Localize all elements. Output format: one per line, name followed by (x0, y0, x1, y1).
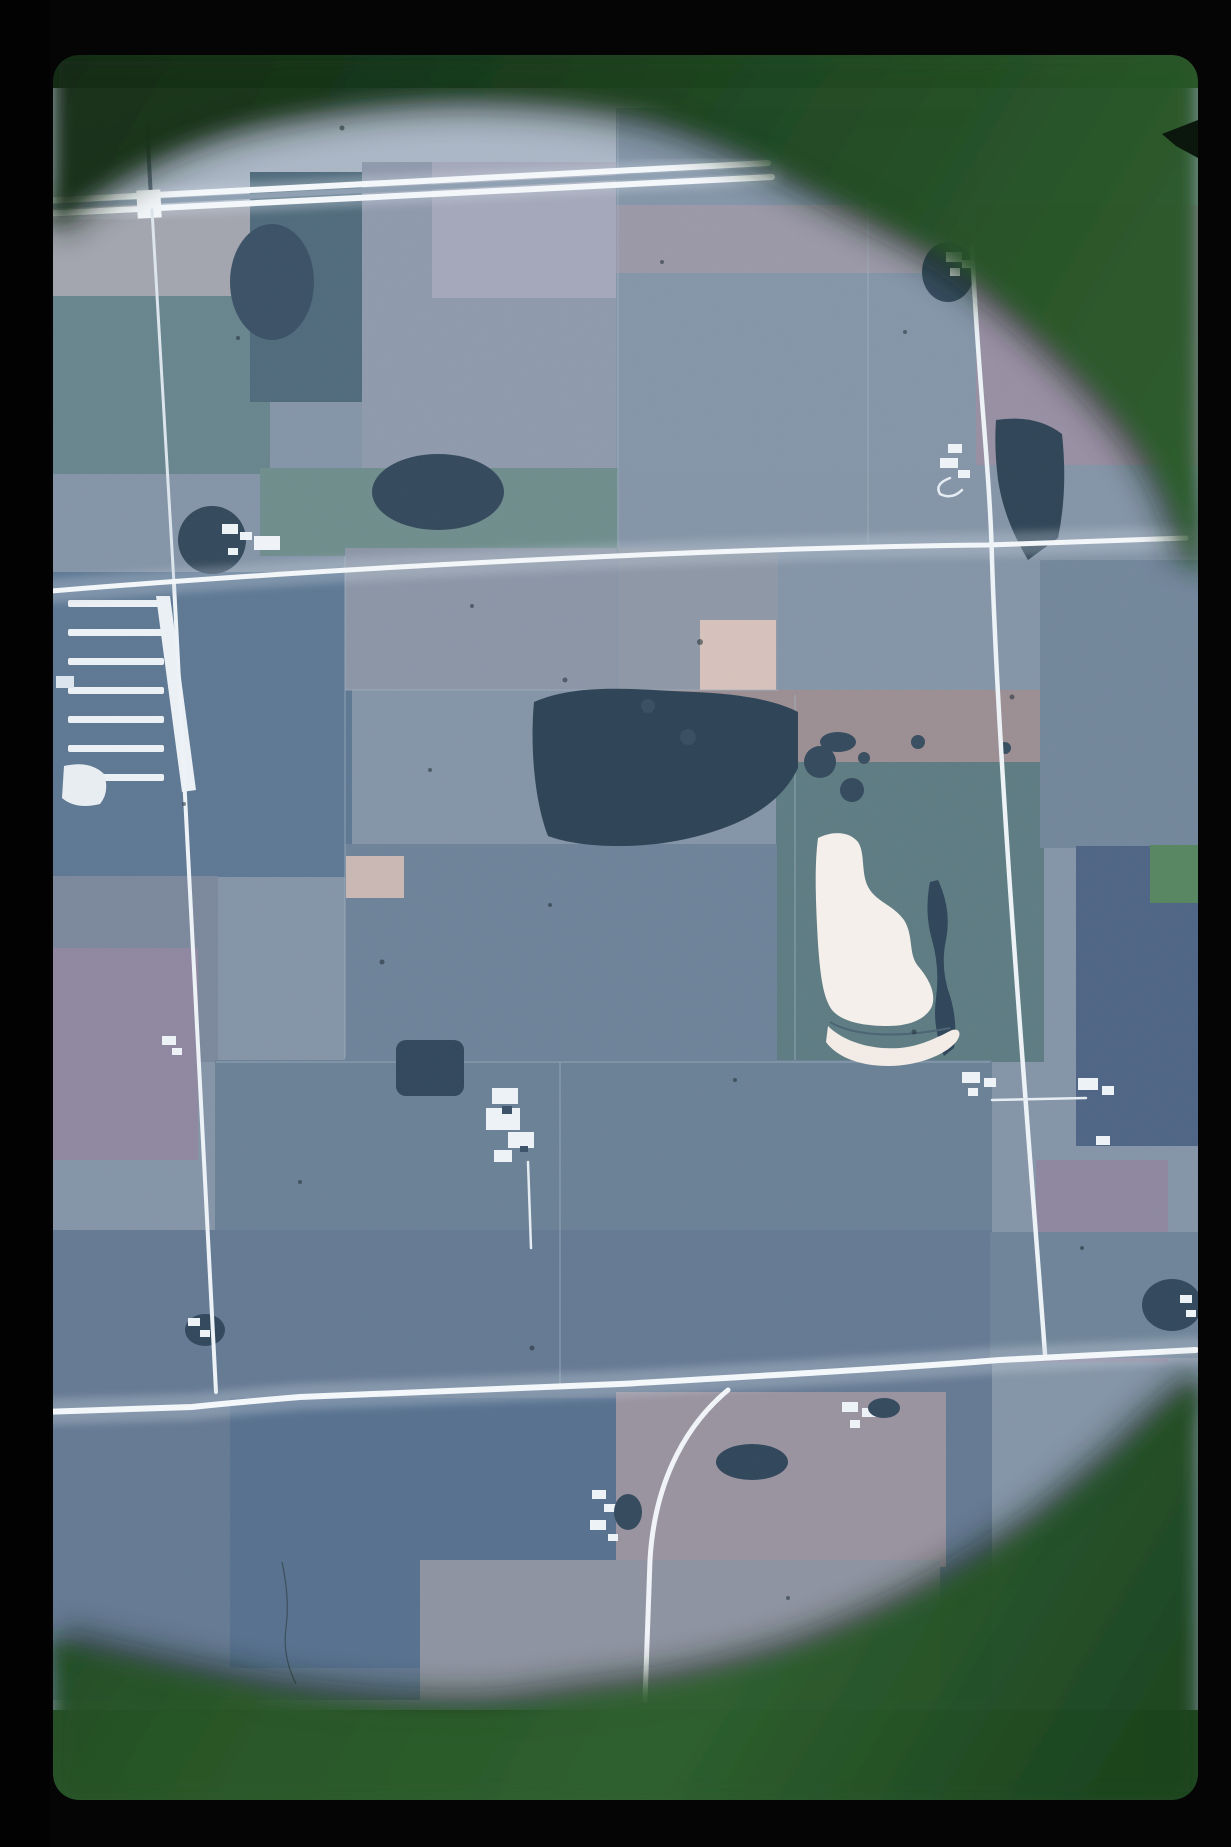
scan-frame-left-edge (0, 0, 50, 1847)
slide-svg: 35mm color slide: vertical aerial photog… (0, 0, 1231, 1847)
scanned-slide-stage: 35mm color slide: vertical aerial photog… (0, 0, 1231, 1847)
